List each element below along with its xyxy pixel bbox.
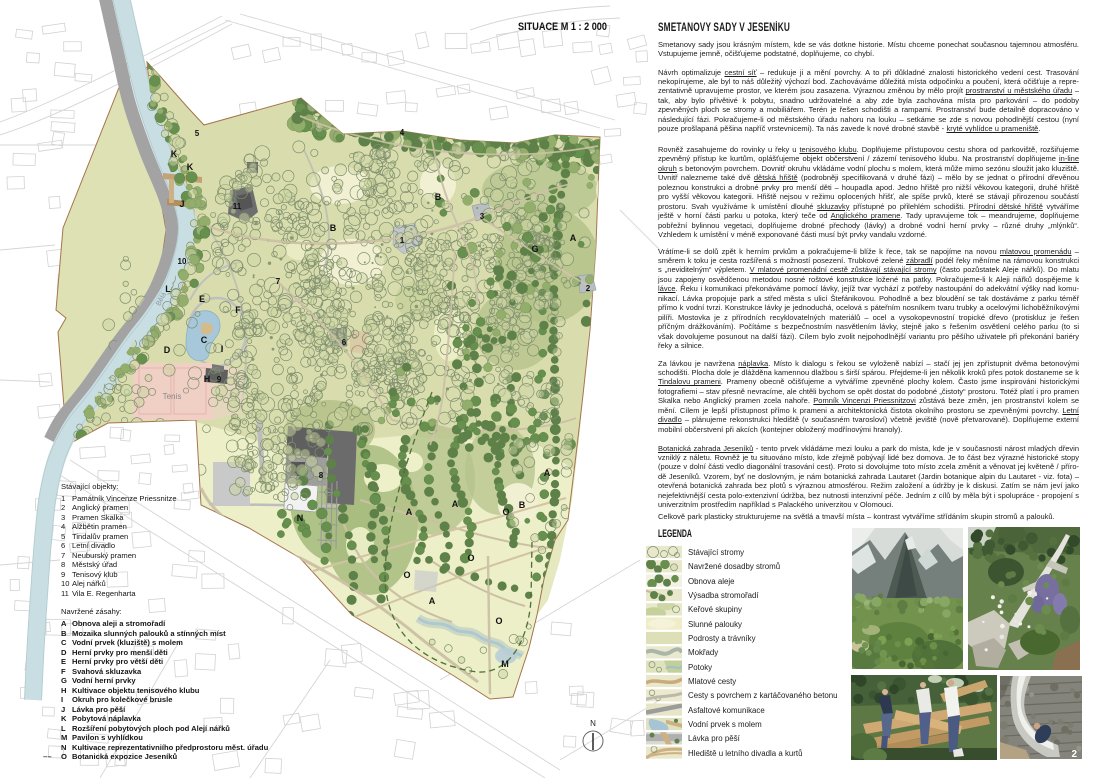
svg-text:M: M <box>501 659 509 669</box>
svg-text:E: E <box>199 294 205 304</box>
svg-text:D: D <box>164 345 171 355</box>
svg-text:7: 7 <box>276 277 281 286</box>
svg-text:B: B <box>435 192 442 202</box>
svg-text:I: I <box>221 344 224 354</box>
svg-text:3: 3 <box>480 212 485 221</box>
svg-text:N: N <box>590 719 596 728</box>
svg-text:A: A <box>406 507 413 517</box>
svg-text:4: 4 <box>400 128 405 137</box>
svg-text:A: A <box>429 596 436 606</box>
svg-text:B: B <box>519 500 526 510</box>
svg-text:O: O <box>495 616 502 626</box>
svg-text:J: J <box>179 199 184 209</box>
svg-text:O: O <box>502 507 509 517</box>
svg-text:1: 1 <box>400 236 405 245</box>
svg-text:C: C <box>201 335 208 345</box>
svg-text:K: K <box>187 162 194 172</box>
svg-text:6: 6 <box>342 338 347 347</box>
svg-text:10: 10 <box>178 257 187 266</box>
svg-text:A: A <box>570 233 577 243</box>
svg-text:B: B <box>330 223 337 233</box>
svg-text:2: 2 <box>586 284 591 293</box>
svg-text:A: A <box>544 468 551 478</box>
svg-text:O: O <box>467 553 474 563</box>
svg-text:8: 8 <box>319 471 324 480</box>
svg-text:G: G <box>531 244 538 254</box>
svg-text:11: 11 <box>233 202 242 211</box>
svg-text:2: 2 <box>1071 749 1077 760</box>
svg-text:O: O <box>403 570 410 580</box>
svg-text:5: 5 <box>195 129 200 138</box>
svg-text:Tenis: Tenis <box>163 392 182 401</box>
svg-text:K: K <box>171 149 178 159</box>
svg-text:F: F <box>235 305 241 315</box>
svg-text:9: 9 <box>217 375 222 384</box>
svg-text:A: A <box>452 499 459 509</box>
svg-text:H: H <box>204 374 211 384</box>
svg-text:L: L <box>165 284 171 294</box>
